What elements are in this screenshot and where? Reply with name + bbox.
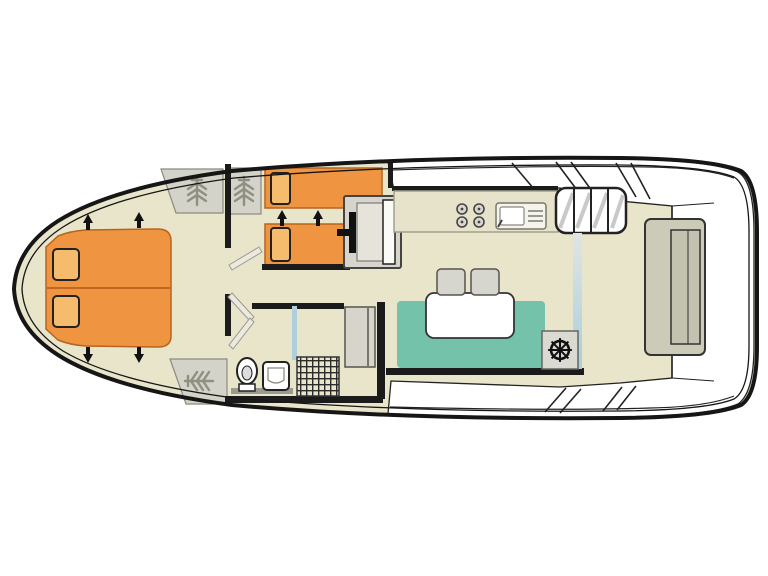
- floor-plan-canvas: [0, 0, 768, 576]
- pillow: [53, 296, 79, 327]
- stern-bench-inner: [671, 230, 700, 344]
- cabin-door-edge: [383, 200, 395, 264]
- toilet-base: [239, 384, 255, 391]
- helm-wheel-icon: [548, 338, 572, 362]
- dinette-table: [426, 293, 514, 338]
- shower-grid-icon: [297, 357, 339, 396]
- aft-deck: [645, 219, 705, 355]
- toilet-bowl: [242, 366, 252, 380]
- pillow: [271, 173, 290, 204]
- door-handle: [337, 229, 351, 236]
- bathroom-door-panel: [345, 307, 375, 367]
- cabin-door: [337, 196, 401, 268]
- pillow: [53, 249, 79, 280]
- pillow: [271, 228, 290, 261]
- door-handle: [349, 212, 356, 253]
- galley-sink-icon: [496, 203, 546, 229]
- cabin-door-inner: [357, 203, 385, 261]
- washbasin-bowl: [268, 368, 284, 383]
- boat-floor-plan: [0, 0, 768, 576]
- galley: [394, 188, 626, 233]
- stool: [437, 269, 465, 295]
- stool: [471, 269, 499, 295]
- shower-glass: [292, 306, 297, 360]
- companionway-steps: [556, 188, 626, 233]
